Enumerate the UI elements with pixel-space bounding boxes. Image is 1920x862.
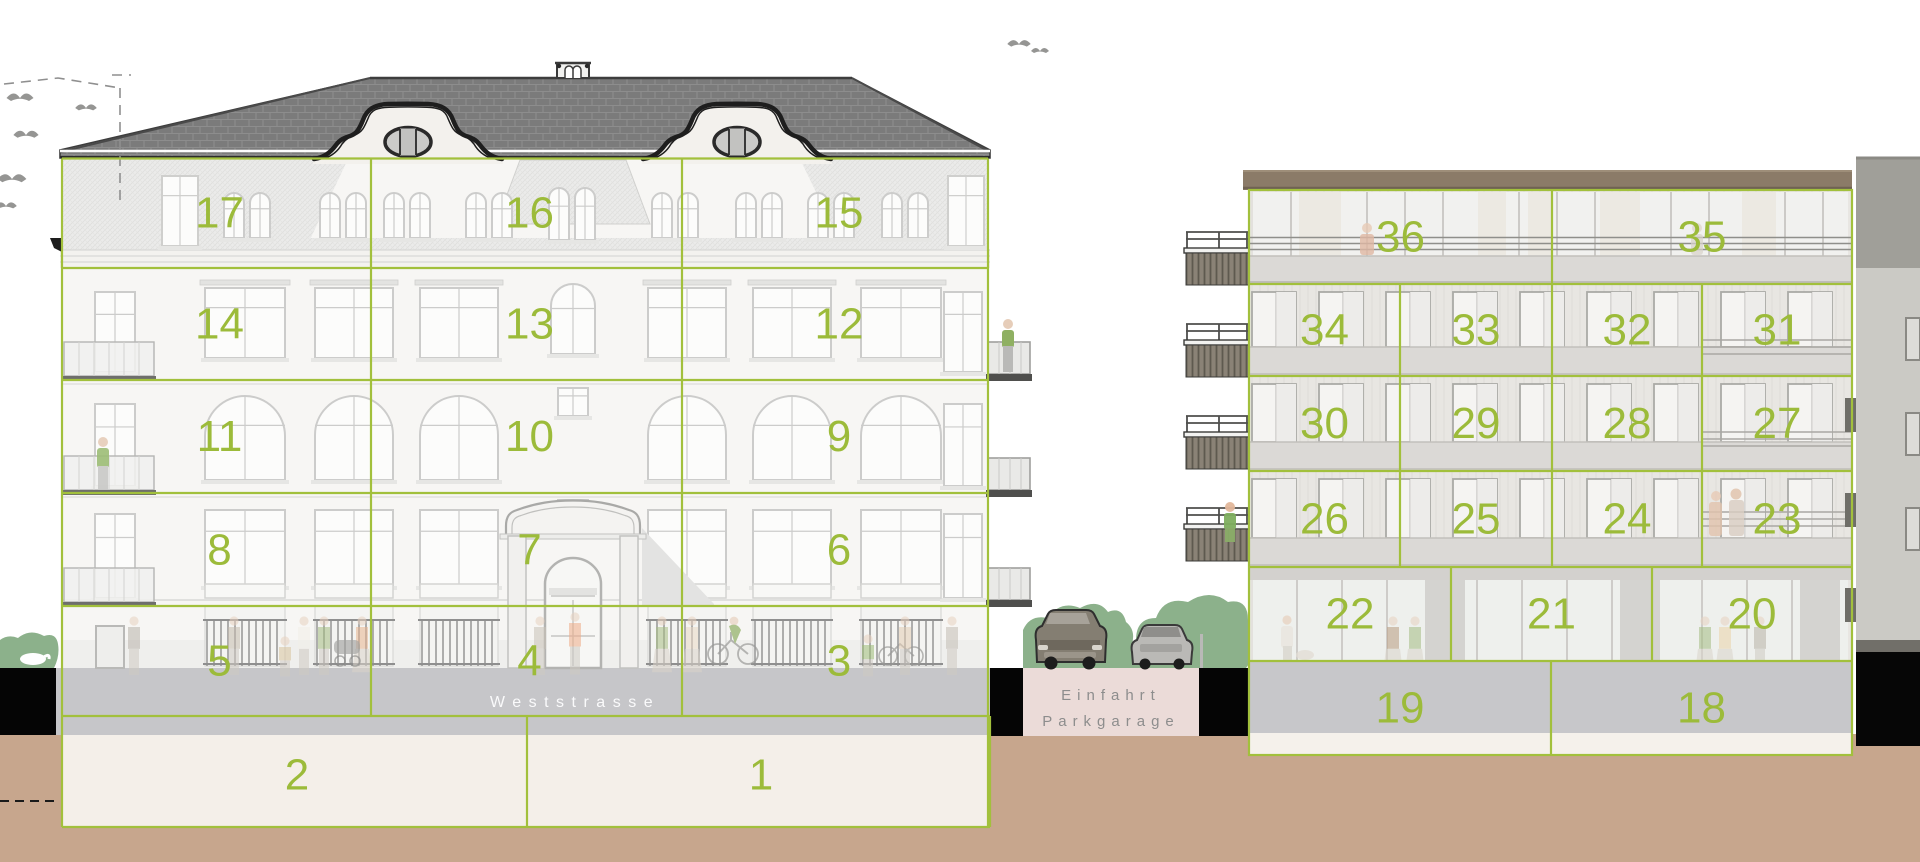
svg-text:5: 5 xyxy=(207,637,231,686)
svg-text:28: 28 xyxy=(1603,399,1652,448)
svg-text:Parkgarage: Parkgarage xyxy=(1042,713,1180,730)
svg-text:24: 24 xyxy=(1603,495,1652,544)
svg-text:31: 31 xyxy=(1753,306,1802,355)
svg-text:4: 4 xyxy=(517,637,541,686)
svg-text:32: 32 xyxy=(1603,306,1652,355)
svg-text:30: 30 xyxy=(1300,399,1349,448)
svg-text:22: 22 xyxy=(1326,590,1375,639)
svg-text:12: 12 xyxy=(815,300,864,349)
svg-text:2: 2 xyxy=(285,751,309,800)
svg-text:9: 9 xyxy=(827,412,851,461)
svg-text:33: 33 xyxy=(1452,306,1501,355)
svg-text:26: 26 xyxy=(1300,495,1349,544)
svg-text:19: 19 xyxy=(1376,684,1425,733)
svg-text:17: 17 xyxy=(195,189,244,238)
svg-text:8: 8 xyxy=(207,526,231,575)
svg-text:10: 10 xyxy=(505,412,554,461)
svg-text:34: 34 xyxy=(1300,306,1349,355)
svg-text:16: 16 xyxy=(505,189,554,238)
svg-text:20: 20 xyxy=(1728,590,1777,639)
svg-text:7: 7 xyxy=(517,526,541,575)
svg-text:11: 11 xyxy=(197,412,243,461)
svg-text:1: 1 xyxy=(749,751,773,800)
svg-text:3: 3 xyxy=(827,637,851,686)
svg-text:27: 27 xyxy=(1753,399,1802,448)
svg-text:14: 14 xyxy=(195,300,244,349)
svg-text:25: 25 xyxy=(1452,495,1501,544)
svg-text:23: 23 xyxy=(1753,495,1802,544)
svg-text:Weststrasse: Weststrasse xyxy=(490,694,660,711)
svg-text:35: 35 xyxy=(1678,213,1727,262)
svg-text:Einfahrt: Einfahrt xyxy=(1061,687,1161,704)
svg-text:15: 15 xyxy=(815,189,864,238)
svg-text:18: 18 xyxy=(1677,684,1726,733)
svg-text:6: 6 xyxy=(827,526,851,575)
svg-text:36: 36 xyxy=(1376,213,1425,262)
svg-text:13: 13 xyxy=(505,300,554,349)
svg-text:29: 29 xyxy=(1452,399,1501,448)
svg-text:21: 21 xyxy=(1527,590,1576,639)
